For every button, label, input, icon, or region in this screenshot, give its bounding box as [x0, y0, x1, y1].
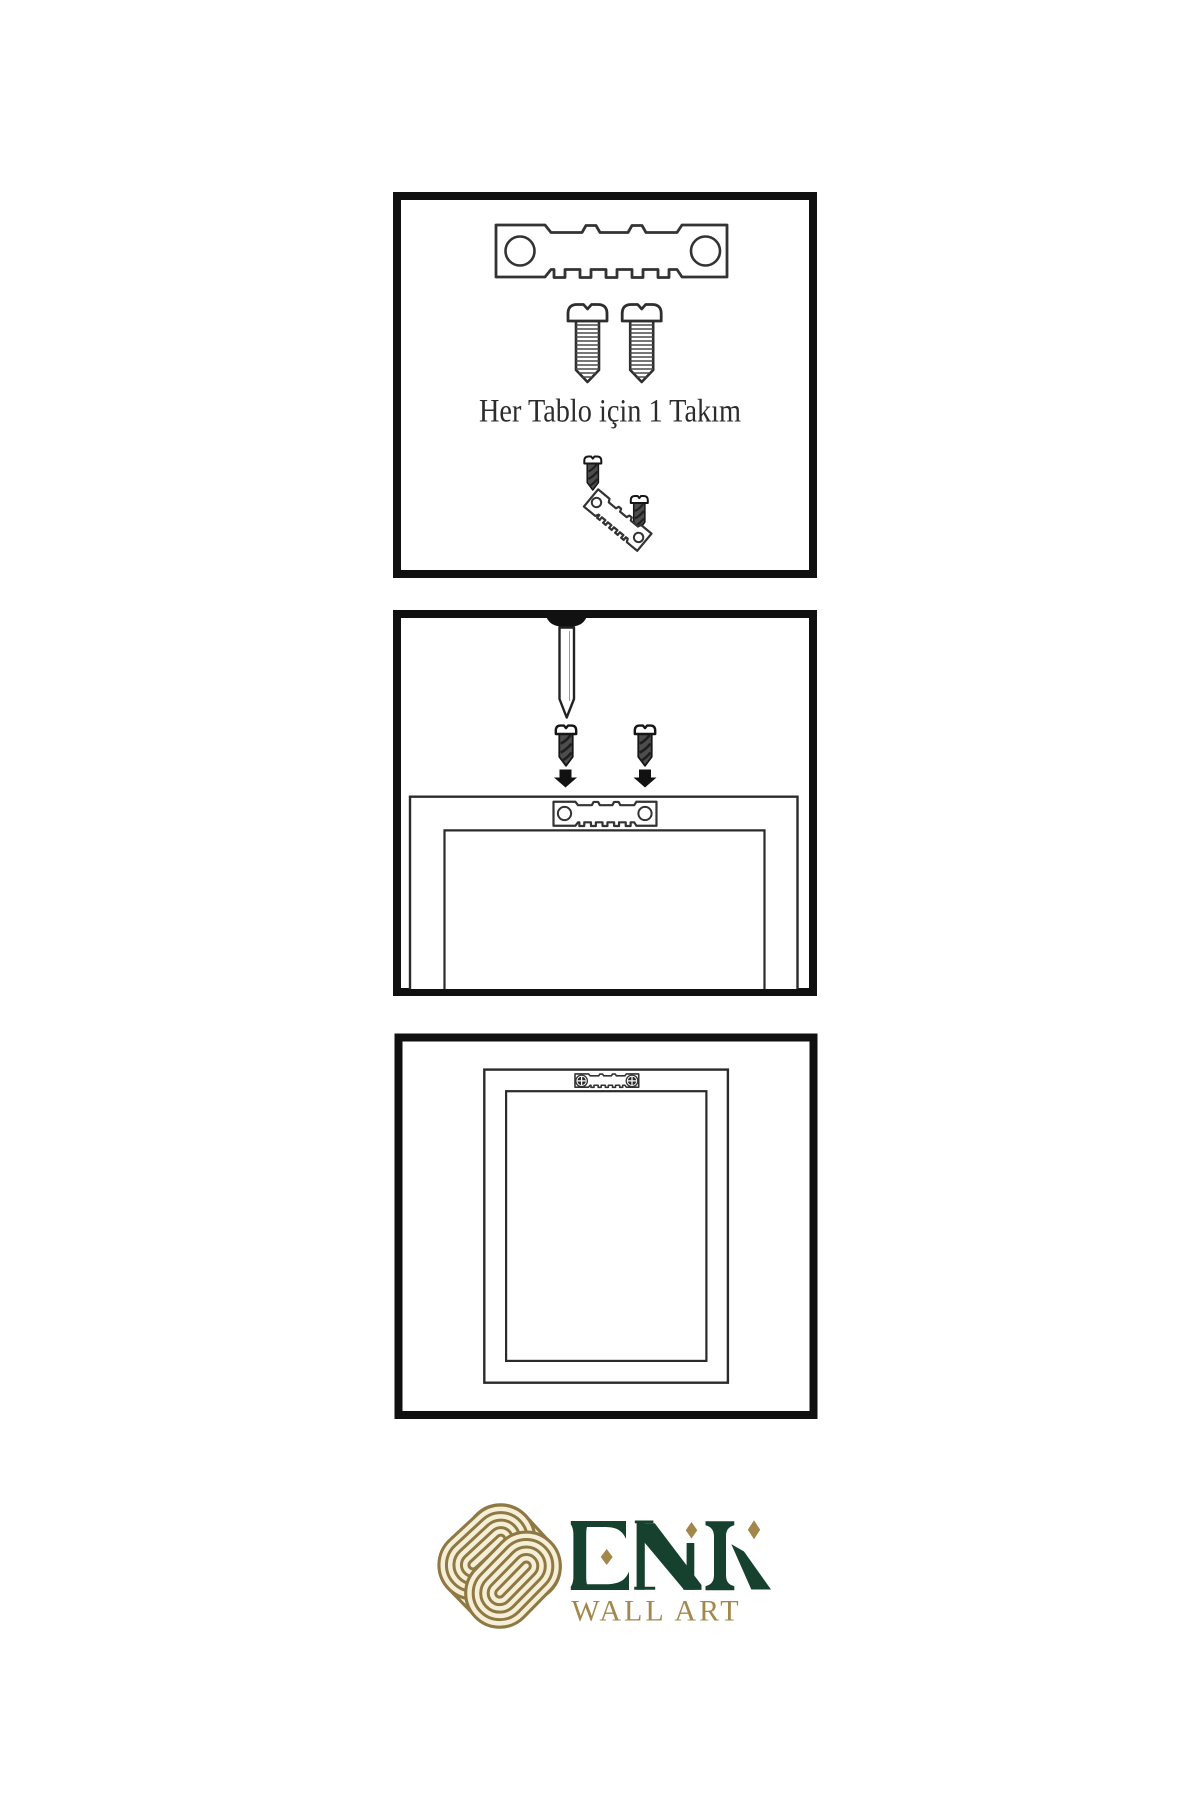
svg-text:WALL ART: WALL ART — [571, 1595, 741, 1628]
svg-text:Her Tablo için 1 Takım: Her Tablo için 1 Takım — [479, 394, 741, 430]
